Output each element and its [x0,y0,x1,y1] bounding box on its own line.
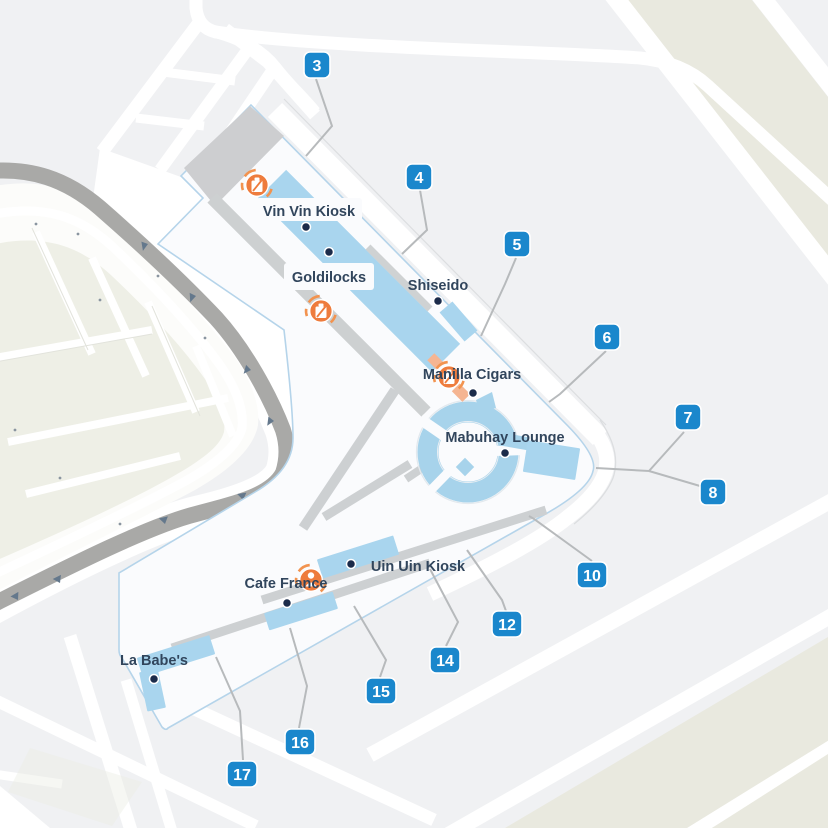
svg-text:Goldilocks: Goldilocks [292,270,366,286]
svg-text:Manilla Cigars: Manilla Cigars [423,367,521,383]
svg-text:La Babe's: La Babe's [120,653,188,669]
svg-text:16: 16 [291,735,309,752]
svg-text:6: 6 [603,330,612,347]
svg-text:3: 3 [313,58,322,75]
svg-text:10: 10 [583,568,601,585]
svg-text:Cafe France: Cafe France [244,576,327,592]
svg-text:Mabuhay Lounge: Mabuhay Lounge [445,430,564,446]
svg-text:14: 14 [436,653,454,670]
svg-text:8: 8 [709,485,718,502]
svg-text:17: 17 [233,767,251,784]
svg-text:12: 12 [498,617,516,634]
svg-text:5: 5 [513,237,522,254]
svg-text:4: 4 [415,170,424,187]
svg-text:Uin Uin Kiosk: Uin Uin Kiosk [371,559,466,575]
svg-text:Vin Vin Kiosk: Vin Vin Kiosk [263,204,356,220]
svg-text:Shiseido: Shiseido [408,278,469,294]
svg-text:15: 15 [372,684,390,701]
svg-text:7: 7 [684,410,693,427]
